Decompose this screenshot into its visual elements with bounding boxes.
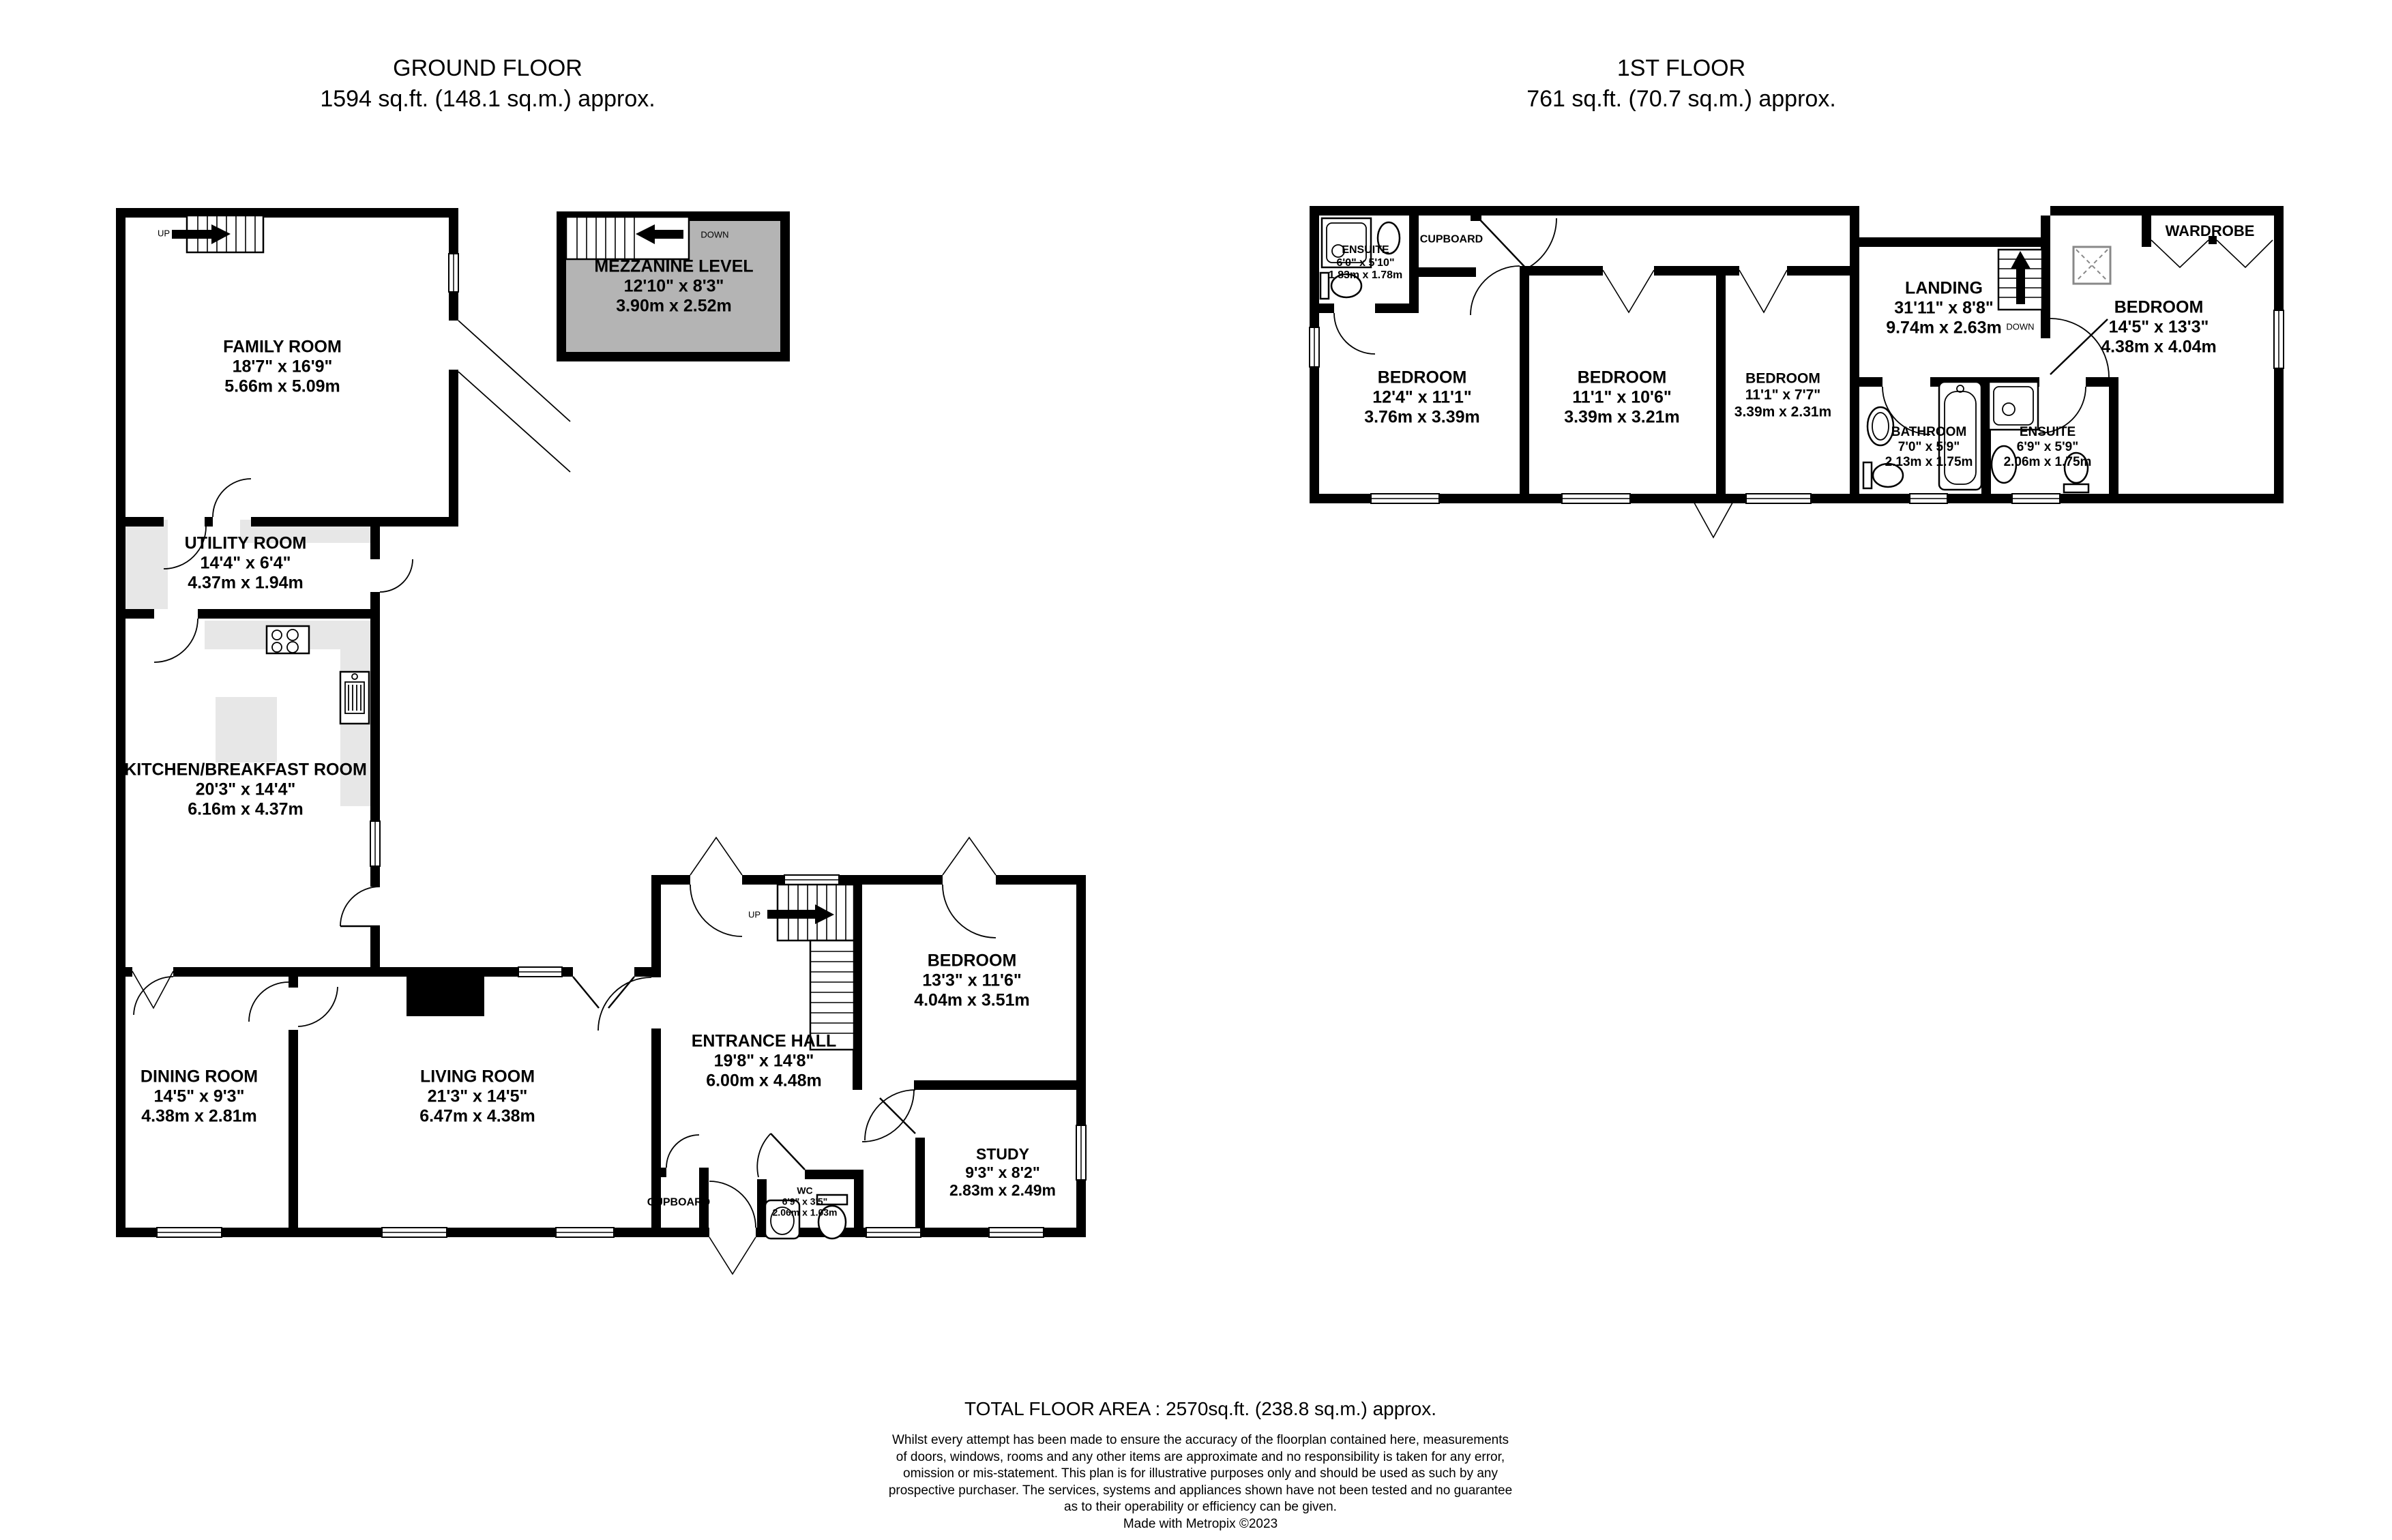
room-label-bedroom-gf: BEDROOM13'3" x 11'6"4.04m x 3.51m: [914, 951, 1030, 1011]
room-label-cupboard-gf: CUPBOARD: [647, 1197, 710, 1210]
down-label-landing-stairs: DOWN: [2006, 321, 2034, 331]
room-label-bed4: BEDROOM14'5" x 13'3"4.38m x 4.04m: [2101, 298, 2217, 357]
landing-stairs-icon: [1998, 250, 2042, 310]
up-label-entrance-stairs: UP: [748, 909, 761, 919]
entrance-stairs-icon: [767, 885, 854, 1050]
room-label-utility: UTILITY ROOM14'4" x 6'4"4.37m x 1.94m: [185, 534, 307, 593]
room-label-dining: DINING ROOM14'5" x 9'3"4.38m x 2.81m: [141, 1067, 258, 1127]
room-label-cupboard-ff: CUPBOARD: [1420, 234, 1483, 247]
family-stairs-icon: [172, 216, 263, 252]
room-label-bed2: BEDROOM11'1" x 10'6"3.39m x 3.21m: [1564, 368, 1680, 428]
chimney-breast: [407, 977, 484, 1016]
wardrobe-rail-icon: [2151, 236, 2273, 267]
floorplan-page: GROUND FLOOR1594 sq.ft. (148.1 sq.m.) ap…: [0, 0, 2392, 1540]
room-label-family: FAMILY ROOM18'7" x 16'9"5.66m x 5.09m: [223, 338, 342, 397]
room-label-bed1: BEDROOM12'4" x 11'1"3.76m x 3.39m: [1364, 368, 1480, 428]
down-label-mezzanine: DOWN: [700, 229, 728, 239]
up-label-family-stairs: UP: [158, 228, 170, 238]
room-label-ensuite2: ENSUITE6'9" x 5'9"2.06m x 1.75m: [2004, 425, 2092, 470]
room-label-bed3: BEDROOM11'1" x 7'7"3.39m x 2.31m: [1734, 370, 1831, 420]
room-label-living: LIVING ROOM21'3" x 14'5"6.47m x 4.38m: [419, 1067, 535, 1127]
mezzanine-stairs-icon: [566, 217, 689, 259]
room-label-study: STUDY9'3" x 8'2"2.83m x 2.49m: [949, 1145, 1056, 1200]
room-label-bathroom: BATHROOM7'0" x 5'9"2.13m x 1.75m: [1885, 425, 1973, 470]
room-label-wardrobe: WARDROBE: [2166, 222, 2255, 240]
family-opening-line: [458, 372, 570, 472]
room-label-entrance: ENTRANCE HALL19'8" x 14'8"6.00m x 4.48m: [692, 1032, 837, 1091]
hob-icon: [267, 626, 309, 653]
skylight-icon: [2073, 247, 2110, 284]
disclaimer-text: Whilst every attempt has been made to en…: [889, 1432, 1512, 1532]
room-label-kitchen: KITCHEN/BREAKFAST ROOM20'3" x 14'4"6.16m…: [124, 760, 367, 820]
room-label-ensuite1: ENSUITE6'0" x 5'10"1.83m x 1.78m: [1329, 244, 1403, 282]
room-label-landing: LANDING31'11" x 8'8"9.74m x 2.63m: [1886, 279, 2002, 338]
room-label-mezzanine: MEZZANINE LEVEL12'10" x 8'3"3.90m x 2.52…: [594, 257, 753, 316]
family-opening-line: [458, 321, 570, 421]
first-floor-title: 1ST FLOOR761 sq.ft. (70.7 sq.m.) approx.: [1526, 53, 1836, 115]
kitchen-sink-icon: [340, 672, 369, 724]
metropix-credit: Made with Metropix ©2023: [889, 1516, 1512, 1533]
room-label-wc: WC6'9" x 3'5"2.06m x 1.03m: [773, 1185, 838, 1219]
total-floor-area: TOTAL FLOOR AREA : 2570sq.ft. (238.8 sq.…: [964, 1398, 1436, 1420]
ensuite2-shower-icon: [1989, 382, 2038, 430]
ground-floor-title: GROUND FLOOR1594 sq.ft. (148.1 sq.m.) ap…: [320, 53, 655, 115]
